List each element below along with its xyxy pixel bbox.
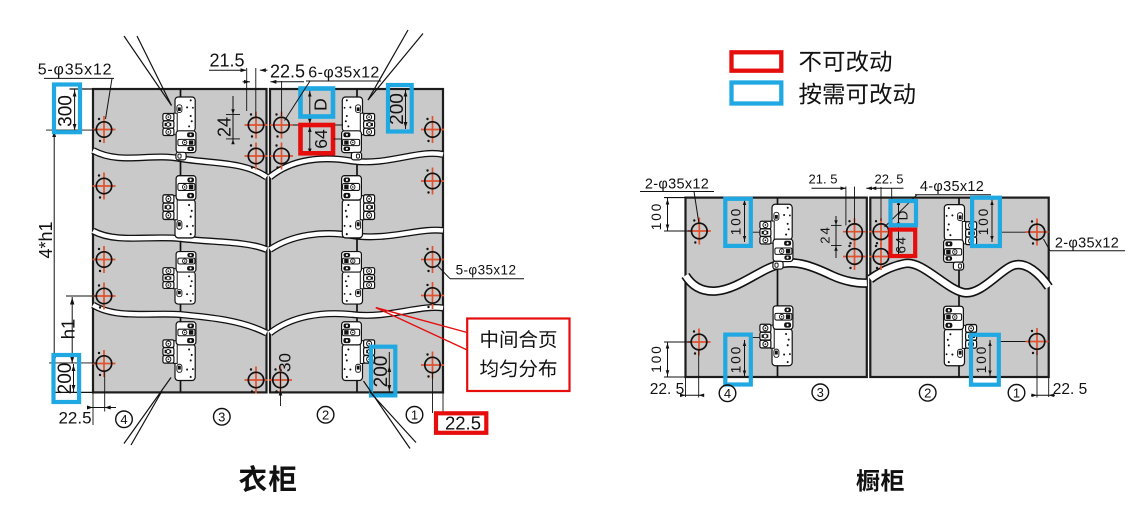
svg-text:h1: h1 [58,319,79,340]
svg-text:5-φ35x12: 5-φ35x12 [38,62,113,79]
svg-text:4: 4 [724,386,731,401]
svg-text:1: 1 [1013,385,1020,400]
svg-text:200: 200 [55,363,76,395]
svg-text:200: 200 [387,93,408,125]
svg-text:100: 100 [974,345,989,374]
svg-text:2-φ35x12: 2-φ35x12 [1055,236,1119,252]
svg-text:64: 64 [311,129,331,149]
svg-text:200: 200 [371,356,392,388]
svg-text:22. 5: 22. 5 [1053,381,1087,398]
svg-text:5-φ35x12: 5-φ35x12 [456,263,517,278]
svg-text:30: 30 [276,353,295,372]
svg-text:100: 100 [976,207,991,236]
svg-text:D: D [896,210,911,220]
svg-text:2: 2 [924,385,931,400]
svg-text:4*h1: 4*h1 [36,221,56,258]
svg-text:24: 24 [215,117,235,137]
svg-text:3: 3 [218,409,225,424]
svg-text:22. 5: 22. 5 [875,171,904,186]
svg-text:100: 100 [649,202,664,231]
svg-text:24: 24 [818,225,833,243]
svg-text:300: 300 [56,95,77,127]
svg-text:22. 5: 22. 5 [650,381,684,398]
svg-text:21.5: 21.5 [209,51,244,71]
svg-text:1: 1 [411,407,418,422]
svg-text:100: 100 [729,345,744,374]
svg-text:22.5: 22.5 [445,413,481,434]
svg-text:21. 5: 21. 5 [809,171,838,186]
svg-text:2: 2 [322,407,329,422]
svg-text:2-φ35x12: 2-φ35x12 [645,177,709,193]
svg-text:64: 64 [894,235,909,253]
svg-text:22.5: 22.5 [270,62,305,82]
svg-text:22.5: 22.5 [58,409,91,428]
svg-text:100: 100 [729,207,744,236]
svg-text:D: D [311,98,331,111]
svg-text:4-φ35x12: 4-φ35x12 [920,179,984,195]
svg-text:3: 3 [817,385,824,400]
svg-text:6-φ35x12: 6-φ35x12 [308,65,379,82]
svg-text:100: 100 [649,344,664,373]
svg-text:4: 4 [120,412,127,427]
